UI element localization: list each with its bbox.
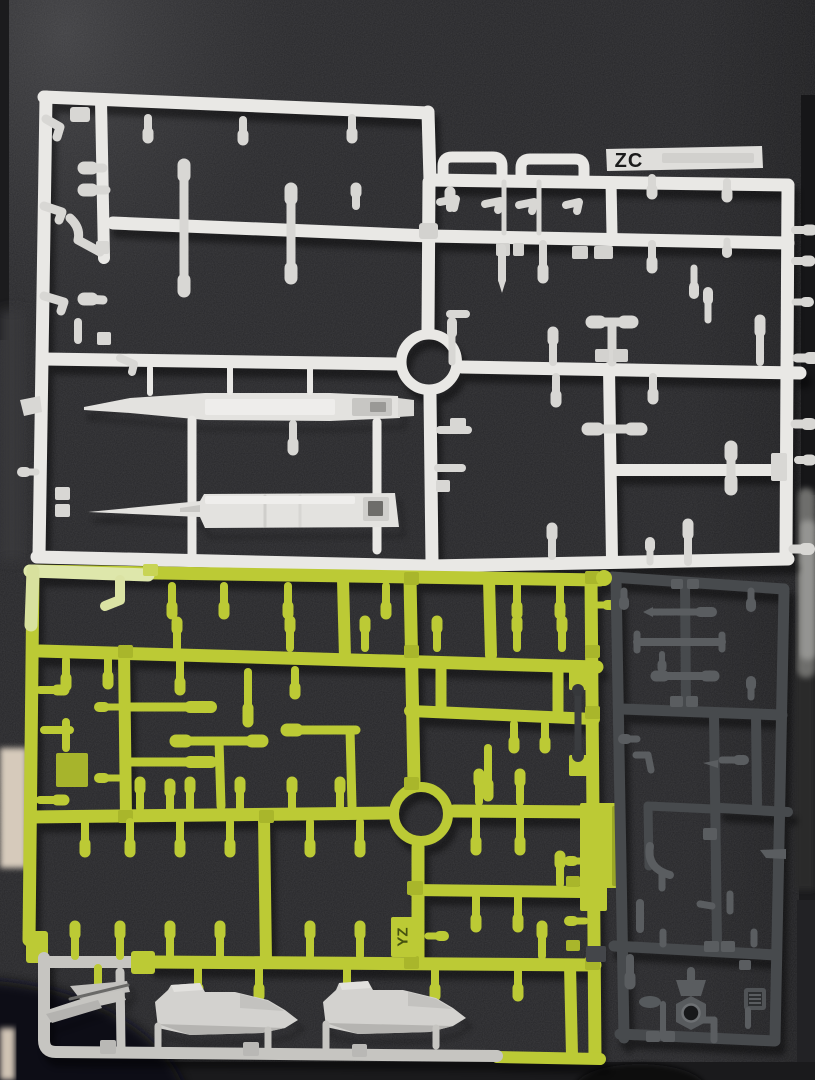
svg-text:YZ: YZ xyxy=(395,927,412,946)
svg-text:ZC: ZC xyxy=(615,150,644,172)
